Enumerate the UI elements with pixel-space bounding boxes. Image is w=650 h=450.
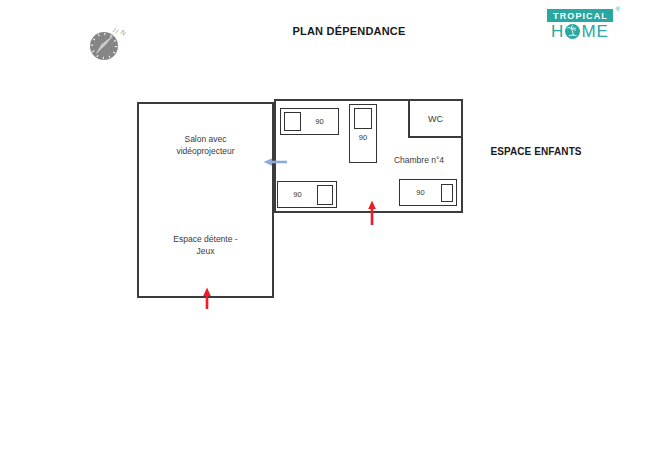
pillow: [284, 112, 301, 131]
bed-size-label: 90: [278, 190, 317, 199]
chambre-label: Chambre n°4: [374, 155, 464, 167]
bed-top-middle-vertical: 90: [349, 104, 377, 163]
palm-icon: [565, 24, 580, 39]
floor-plan-page: N PLAN DÉPENDANCE TROPICAL ® H: [0, 0, 650, 450]
room-left-outline: [137, 102, 274, 298]
brand-name-bottom-me: ME: [581, 23, 609, 40]
detente-label-line1: Espace détente -: [147, 234, 264, 246]
wc-label: WC: [428, 114, 443, 124]
detente-label-line2: Jeux: [147, 246, 264, 258]
brand-name-bottom-h: H: [551, 23, 564, 40]
page-title: PLAN DÉPENDANCE: [249, 25, 449, 37]
bed-size-label: 90: [350, 133, 376, 142]
brand-logo: TROPICAL ® H ME: [547, 9, 613, 40]
bed-size-label: 90: [301, 117, 338, 126]
compass-icon: N: [89, 24, 131, 64]
registered-mark: ®: [616, 6, 620, 12]
espace-enfants-label: ESPACE ENFANTS: [484, 146, 588, 157]
bed-bottom-left: 90: [277, 181, 337, 208]
room-wc-outline: WC: [408, 99, 463, 138]
red-arrow-up-icon: [366, 200, 378, 226]
bed-top-left: 90: [280, 108, 339, 135]
bed-size-label: 90: [400, 188, 441, 197]
compass-north-label: N: [119, 28, 127, 37]
pillow: [317, 185, 333, 205]
pillow: [354, 108, 372, 129]
bed-bottom-right: 90: [399, 179, 457, 206]
brand-logo-wordmark-top: TROPICAL ®: [547, 9, 613, 22]
salon-label-line1: Salon avec: [147, 134, 264, 146]
blue-arrow-left-icon: [263, 156, 288, 168]
salon-label: Salon avec vidéoprojecteur: [147, 134, 264, 157]
pillow: [441, 184, 453, 202]
red-arrow-up-icon: [201, 287, 213, 310]
brand-name-top: TROPICAL: [553, 11, 608, 21]
salon-label-line2: vidéoprojecteur: [147, 146, 264, 158]
brand-logo-wordmark-bottom: H ME: [547, 23, 613, 40]
detente-label: Espace détente - Jeux: [147, 234, 264, 257]
